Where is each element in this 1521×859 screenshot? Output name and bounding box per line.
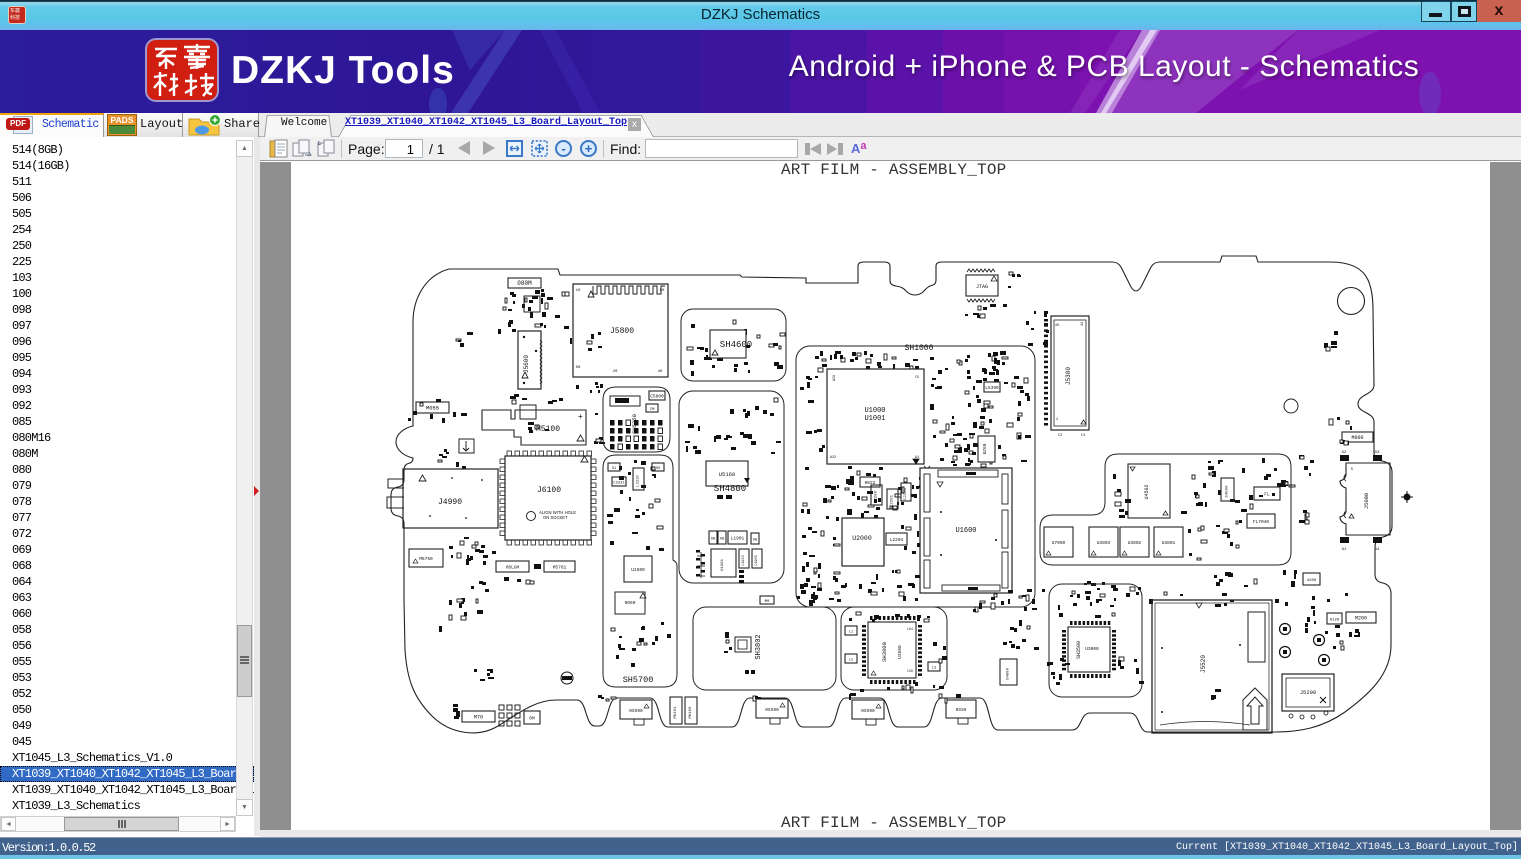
- svg-text:L5390: L5390: [985, 385, 999, 391]
- svg-text:U3000: U3000: [1085, 646, 1099, 652]
- svg-text:0SS9: 0SS9: [956, 707, 967, 713]
- svg-text:U1600: U1600: [955, 527, 976, 535]
- svg-text:G3: G3: [1375, 451, 1380, 455]
- svg-text:J5300: J5300: [1065, 367, 1072, 385]
- svg-text:0B: 0B: [753, 539, 757, 543]
- svg-text:L2204: L2204: [890, 537, 904, 543]
- svg-text:L2200: L2200: [875, 490, 879, 503]
- svg-text:5: 5: [1351, 468, 1354, 472]
- svg-text:C1923: C1923: [742, 555, 746, 566]
- svg-text:J5800: J5800: [610, 327, 634, 336]
- svg-text:M5100: M5100: [536, 425, 560, 434]
- svg-text:10: 10: [576, 289, 581, 293]
- svg-text:M6101: M6101: [674, 706, 678, 719]
- svg-text:U4502: U4502: [1144, 484, 1150, 499]
- svg-text:L2201: L2201: [891, 494, 895, 507]
- svg-text:U1500: U1500: [631, 567, 645, 573]
- svg-text:C5800: C5800: [650, 394, 664, 400]
- svg-text:U7050: U7050: [1052, 540, 1066, 546]
- svg-text:U3500: U3500: [897, 645, 903, 659]
- svg-text:C5: C5: [915, 376, 919, 380]
- svg-text:J4990: J4990: [438, 498, 462, 507]
- svg-text:C1905: C1905: [755, 555, 759, 566]
- svg-text:J5200: J5200: [1300, 689, 1317, 696]
- svg-text:C2221: C2221: [613, 482, 625, 486]
- svg-text:ART FILM - ASSEMBLY_TOP: ART FILM - ASSEMBLY_TOP: [781, 161, 1006, 179]
- svg-text:54500: 54500: [1226, 485, 1230, 498]
- svg-text:G4: G4: [1375, 548, 1380, 552]
- svg-text:0B: 0B: [711, 538, 715, 542]
- svg-text:M5750: M5750: [419, 556, 433, 562]
- svg-text:M6100: M6100: [689, 706, 693, 719]
- svg-text:U1000: U1000: [864, 407, 885, 415]
- svg-text:S4800: S4800: [1007, 667, 1011, 680]
- svg-text:C3: C3: [1058, 434, 1062, 438]
- svg-text:C4: C4: [1081, 434, 1085, 438]
- svg-text:FL: FL: [1264, 492, 1270, 498]
- svg-text:08LGM: 08LGM: [506, 565, 520, 571]
- svg-text:J5000: J5000: [1363, 493, 1370, 510]
- svg-text:0SS90: 0SS90: [765, 707, 779, 713]
- svg-text:L2: L2: [849, 659, 853, 663]
- svg-text:2: 2: [1056, 418, 1058, 422]
- svg-text:0SS90: 0SS90: [629, 708, 643, 714]
- svg-text:ON SOCKET: ON SOCKET: [543, 515, 568, 520]
- svg-text:L2210: L2210: [637, 475, 641, 487]
- svg-text:M000: M000: [1351, 435, 1363, 441]
- svg-text:A29: A29: [833, 375, 837, 381]
- svg-text:J5600: J5600: [523, 355, 530, 373]
- svg-text:M055: M055: [426, 405, 439, 412]
- svg-text:J5520: J5520: [1200, 655, 1207, 673]
- svg-text:M200: M200: [1355, 616, 1367, 622]
- svg-text:0SS90: 0SS90: [861, 708, 875, 714]
- svg-text:0M: 0M: [529, 716, 535, 722]
- svg-text:U1901: U1901: [721, 558, 725, 571]
- svg-text:FL7040: FL7040: [1253, 519, 1270, 525]
- svg-text:U3803: U3803: [1097, 540, 1111, 546]
- svg-text:U5160: U5160: [719, 471, 736, 478]
- svg-text:+: +: [578, 412, 583, 421]
- svg-text:0060: 0060: [625, 600, 636, 606]
- svg-text:080M: 080M: [517, 280, 532, 287]
- svg-text:ART FILM - ASSEMBLY_TOP: ART FILM - ASSEMBLY_TOP: [781, 814, 1006, 831]
- svg-text:CM: CM: [650, 408, 655, 412]
- svg-text:M70: M70: [474, 715, 483, 721]
- svg-text:SH3802: SH3802: [755, 634, 763, 659]
- svg-text:0Z69: 0Z69: [982, 443, 988, 454]
- svg-text:J6100: J6100: [537, 486, 561, 495]
- svg-text:40: 40: [1055, 324, 1059, 328]
- svg-text:U3801: U3801: [1162, 540, 1176, 546]
- svg-text:U2000: U2000: [852, 535, 872, 542]
- svg-text:SH3500: SH3500: [1076, 641, 1082, 659]
- svg-text:41: 41: [1081, 322, 1085, 326]
- svg-text:SH1000: SH1000: [905, 344, 934, 353]
- svg-text:40: 40: [658, 370, 663, 374]
- svg-text:G2: G2: [1342, 451, 1347, 455]
- svg-text:0B: 0B: [720, 538, 724, 542]
- svg-text:0120: 0120: [1330, 619, 1340, 623]
- svg-text:L1: L1: [849, 631, 853, 635]
- svg-text:SH4600: SH4600: [720, 340, 752, 350]
- svg-text:U1001: U1001: [864, 415, 885, 423]
- svg-text:S0: S0: [656, 467, 660, 471]
- svg-text:SH4800: SH4800: [714, 484, 746, 494]
- svg-text:20: 20: [613, 370, 618, 374]
- svg-text:C2206: C2206: [904, 487, 908, 500]
- svg-text:50: 50: [660, 289, 665, 293]
- svg-text:G1: G1: [1342, 548, 1347, 552]
- svg-text:SH5700: SH5700: [623, 675, 654, 685]
- svg-text:4200: 4200: [1307, 579, 1317, 583]
- svg-text:M0: M0: [765, 600, 770, 604]
- svg-text:U3802: U3802: [1128, 540, 1142, 546]
- svg-text:L56: L56: [907, 669, 913, 673]
- svg-text:S1: S1: [612, 467, 616, 471]
- svg-text:L1901: L1901: [731, 536, 745, 542]
- svg-text:M5761: M5761: [553, 565, 567, 571]
- svg-text:L64: L64: [907, 627, 913, 631]
- svg-text:09: 09: [576, 366, 581, 370]
- svg-text:JTAG: JTAG: [976, 284, 988, 290]
- svg-text:SH3800: SH3800: [881, 642, 888, 662]
- svg-text:L3: L3: [932, 667, 936, 671]
- svg-text:A22: A22: [830, 456, 836, 460]
